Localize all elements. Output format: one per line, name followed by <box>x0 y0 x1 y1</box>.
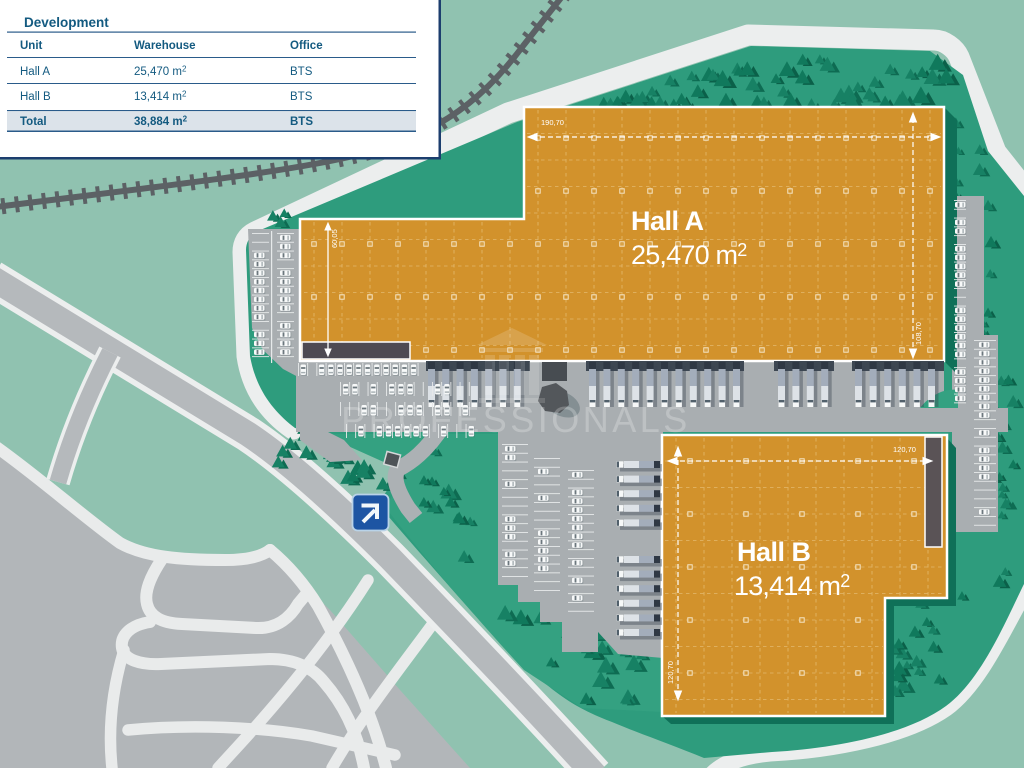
svg-text:Office: Office <box>290 40 323 52</box>
svg-text:Hall B: Hall B <box>737 537 811 567</box>
svg-text:25,470 m2: 25,470 m2 <box>134 65 187 79</box>
svg-text:13,414 m2: 13,414 m2 <box>134 90 187 104</box>
svg-text:Total: Total <box>20 116 47 128</box>
svg-text:Unit: Unit <box>20 40 43 52</box>
svg-text:PROFESSIONALS: PROFESSIONALS <box>341 399 691 440</box>
svg-text:BTS: BTS <box>290 66 313 78</box>
svg-text:13,414 m2: 13,414 m2 <box>734 571 850 601</box>
svg-text:Warehouse: Warehouse <box>134 40 196 52</box>
svg-text:120,70: 120,70 <box>893 445 916 454</box>
svg-text:25,470 m2: 25,470 m2 <box>631 240 747 270</box>
svg-text:BTS: BTS <box>290 116 313 128</box>
svg-text:38,884 m2: 38,884 m2 <box>134 115 188 129</box>
svg-text:190,70: 190,70 <box>541 118 564 127</box>
svg-text:BTS: BTS <box>290 91 313 103</box>
svg-text:Hall B: Hall B <box>20 91 51 103</box>
svg-text:60,05: 60,05 <box>330 229 339 248</box>
svg-text:108,70: 108,70 <box>914 322 923 345</box>
svg-text:Development: Development <box>24 15 109 30</box>
svg-text:120,70: 120,70 <box>666 661 675 684</box>
svg-text:Hall A: Hall A <box>631 206 704 236</box>
svg-text:Hall A: Hall A <box>20 66 50 78</box>
